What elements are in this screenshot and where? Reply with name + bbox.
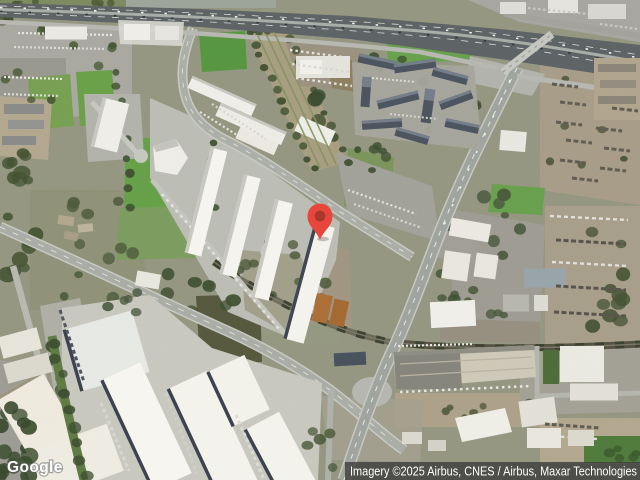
svg-text:Imagery ©2025 Airbus, CNES / A: Imagery ©2025 Airbus, CNES / Airbus, Max…: [350, 464, 637, 479]
svg-text:Google: Google: [7, 459, 63, 476]
